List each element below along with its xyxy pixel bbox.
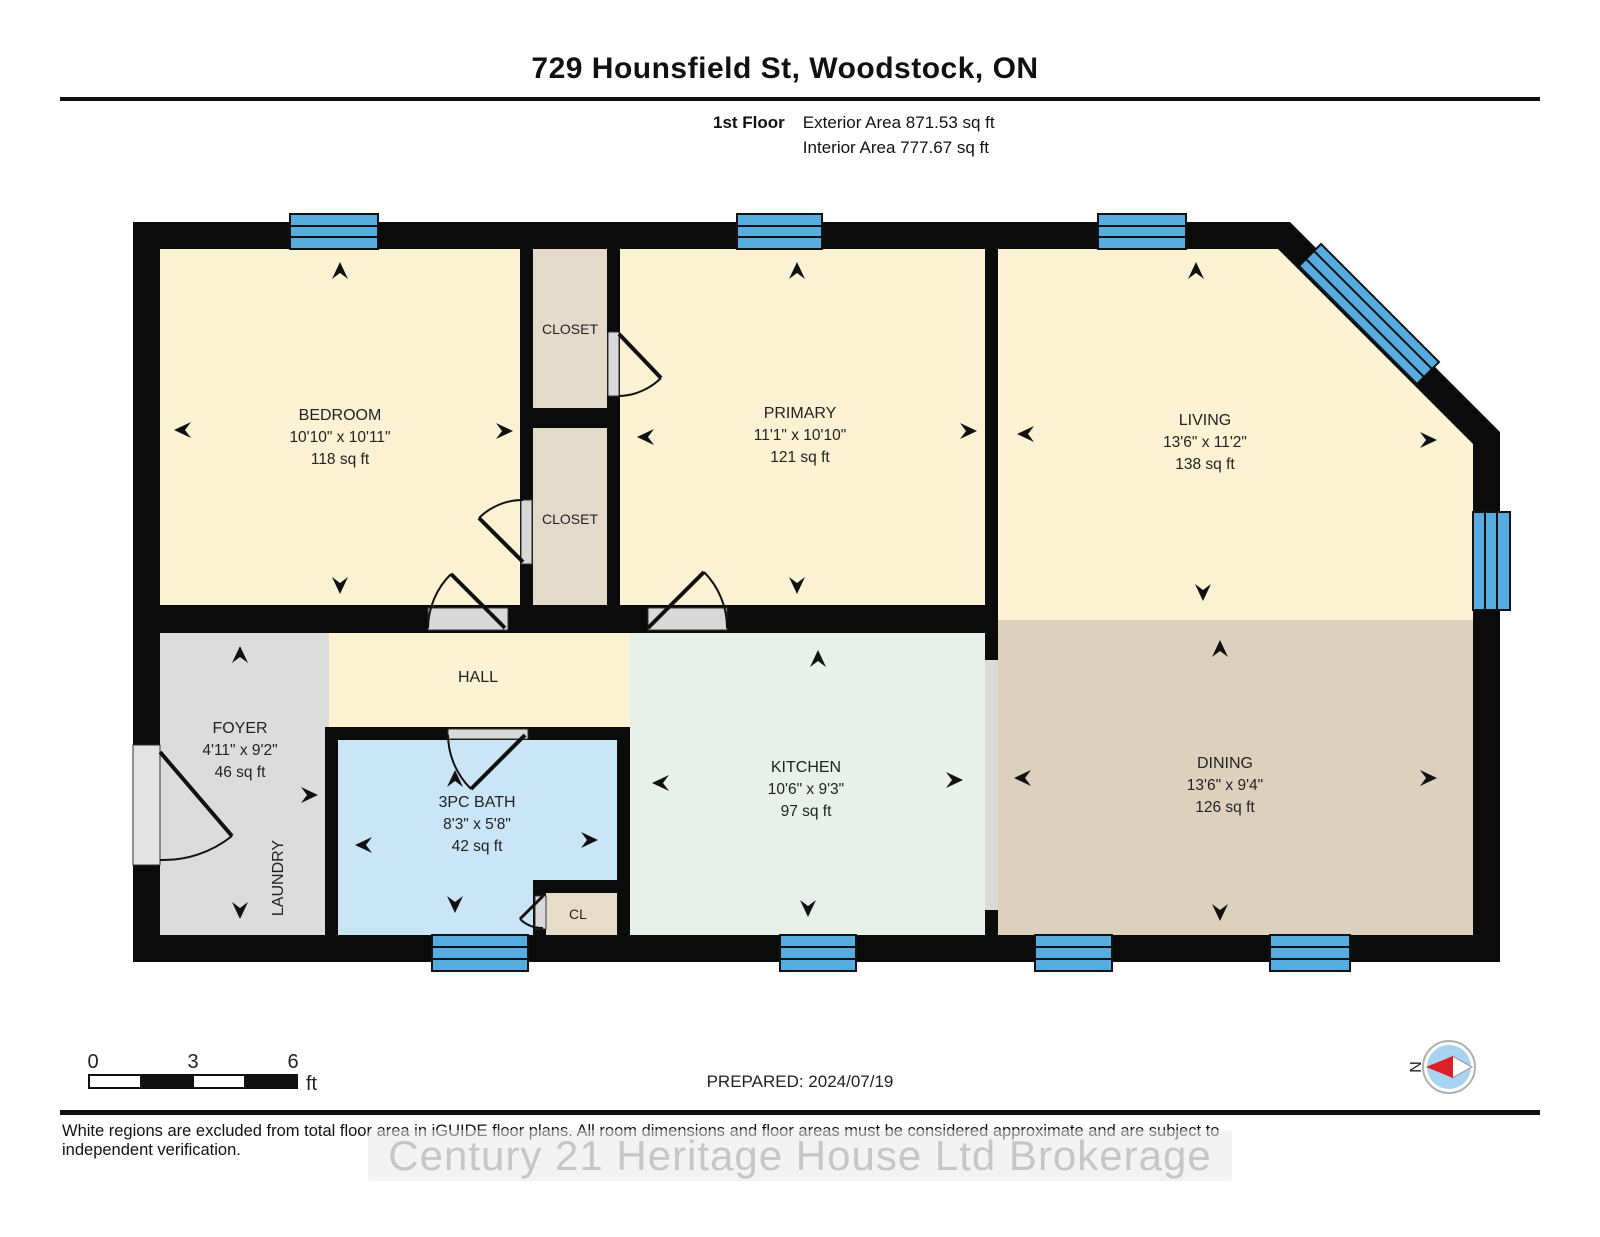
- bath-area: 42 sq ft: [452, 838, 504, 855]
- window-bottom-bath: [432, 935, 528, 971]
- scale-unit: ft: [306, 1073, 318, 1095]
- footer-divider: [60, 1110, 1540, 1115]
- scale-bar: 0 3 6 ft: [87, 1051, 317, 1095]
- primary-label: PRIMARY: [764, 405, 837, 422]
- bedroom-area: 118 sq ft: [311, 451, 370, 468]
- compass-north-label: N: [1408, 1061, 1425, 1073]
- scale-tick-6: 6: [287, 1051, 298, 1073]
- bath-label: 3PC BATH: [438, 794, 515, 811]
- primary-area: 121 sq ft: [770, 449, 830, 466]
- wall-mid-horizontal: [133, 605, 998, 633]
- scale-tick-0: 0: [87, 1051, 98, 1073]
- opening-kitchen-dining: [985, 660, 998, 910]
- foyer-dims: 4'11" x 9'2": [202, 742, 277, 759]
- wall-closet-primary: [607, 249, 620, 605]
- closet-small-label: CL: [569, 906, 587, 922]
- kitchen-dims: 10'6" x 9'3": [768, 781, 844, 798]
- window-top-primary: [737, 214, 822, 249]
- compass-icon: N: [1408, 1041, 1475, 1093]
- watermark-label: Century 21 Heritage House Ltd Brokerage: [368, 1130, 1231, 1181]
- prepared-date: PREPARED: 2024/07/19: [707, 1072, 894, 1091]
- wall-bath-right: [617, 727, 630, 935]
- bedroom-label: BEDROOM: [299, 407, 382, 424]
- foyer-label: FOYER: [212, 720, 267, 737]
- wall-bath-left: [325, 727, 338, 935]
- closet-bottom-label: CLOSET: [542, 511, 598, 527]
- watermark-text: Century 21 Heritage House Ltd Brokerage: [0, 1132, 1600, 1180]
- living-dims: 13'6" x 11'2": [1163, 434, 1247, 451]
- wall-closet-divider: [533, 408, 607, 428]
- window-bottom-kitchen: [780, 935, 856, 971]
- living-area: 138 sq ft: [1175, 456, 1235, 473]
- window-top-living: [1098, 214, 1186, 249]
- foyer-area: 46 sq ft: [215, 764, 267, 781]
- laundry-label: LAUNDRY: [270, 840, 287, 917]
- window-top-bedroom: [290, 214, 378, 249]
- wall-primary-living: [985, 249, 998, 633]
- wall-cl-top: [533, 880, 617, 893]
- kitchen-area: 97 sq ft: [781, 803, 833, 820]
- window-bottom-dining-right: [1270, 935, 1350, 971]
- living-label: LIVING: [1179, 412, 1231, 429]
- scale-tick-3: 3: [187, 1051, 198, 1073]
- kitchen-label: KITCHEN: [771, 759, 841, 776]
- dining-label: DINING: [1197, 755, 1253, 772]
- floor-plan-page: 729 Hounsfield St, Woodstock, ON 1st Flo…: [0, 0, 1600, 1237]
- dining-dims: 13'6" x 9'4": [1187, 777, 1263, 794]
- window-right-living: [1473, 512, 1510, 610]
- closet-top-label: CLOSET: [542, 321, 598, 337]
- hall-label: HALL: [458, 669, 498, 686]
- dining-area: 126 sq ft: [1195, 799, 1255, 816]
- window-bottom-dining-left: [1035, 935, 1112, 971]
- bedroom-dims: 10'10" x 10'11": [289, 429, 390, 446]
- bath-dims: 8'3" x 5'8": [443, 816, 511, 833]
- primary-dims: 11'1" x 10'10": [754, 427, 846, 444]
- room-bedroom: [160, 249, 520, 605]
- floor-plan-svg: BEDROOM 10'10" x 10'11" 118 sq ft PRIMAR…: [0, 0, 1600, 1237]
